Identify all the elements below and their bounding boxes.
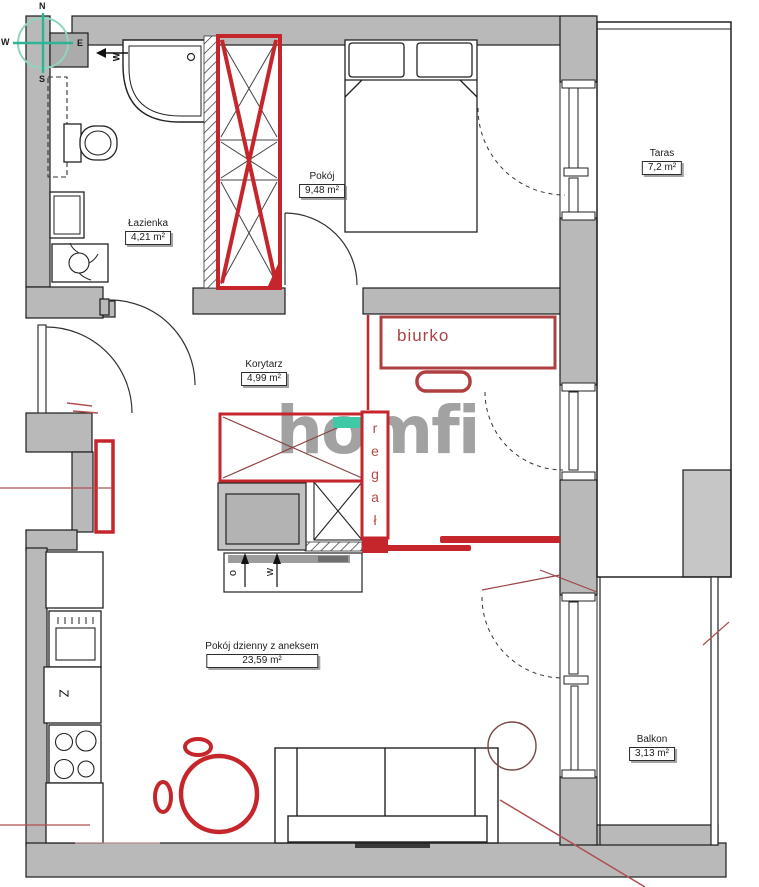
counter-mark-o: o — [227, 570, 239, 576]
vent-label: W — [111, 53, 121, 62]
room-name: Pokój — [299, 171, 345, 183]
compass-west: W — [1, 37, 10, 47]
room-area: 9,48 m² — [299, 184, 345, 198]
room-name: Taras — [642, 148, 682, 160]
teal-highlight — [333, 417, 362, 428]
bookshelf-label: regał — [363, 420, 387, 532]
room-label-pokoj: Pokój 9,48 m² — [299, 171, 345, 198]
compass-east: E — [77, 38, 83, 48]
room-area: 4,99 m² — [241, 372, 287, 386]
room-area: 23,59 m² — [206, 654, 318, 668]
radiator-annotation — [96, 441, 113, 532]
room-name: Pokój dzienny z aneksem — [205, 641, 318, 653]
bookshelf-annotation — [362, 412, 560, 553]
compass-south: S — [39, 74, 45, 84]
compass-north: N — [39, 1, 46, 11]
room-area: 3,13 m² — [629, 747, 675, 761]
dining-table-annotation — [155, 739, 257, 832]
room-area: 7,2 m² — [642, 161, 682, 175]
wardrobe-highlight — [218, 36, 280, 288]
room-name: Łazienka — [125, 218, 171, 230]
room-label-taras: Taras 7,2 m² — [642, 148, 682, 175]
chair-annotation — [417, 372, 470, 391]
room-name: Korytarz — [241, 359, 287, 371]
room-name: Balkon — [629, 734, 675, 746]
room-area: 4,21 m² — [125, 231, 171, 245]
room-label-balkon: Balkon 3,13 m² — [629, 734, 675, 761]
room-label-pokoj-dzienny: Pokój dzienny z aneksem 23,59 m² — [205, 641, 318, 668]
desk-label: biurko — [397, 326, 449, 346]
dishwasher-label: Z — [56, 690, 71, 698]
room-label-lazienka: Łazienka 4,21 m² — [125, 218, 171, 245]
floor-plan: homfi — [0, 0, 759, 887]
counter-mark-w: w — [264, 568, 276, 576]
room-label-korytarz: Korytarz 4,99 m² — [241, 359, 287, 386]
cabinet-highlight — [220, 414, 365, 481]
